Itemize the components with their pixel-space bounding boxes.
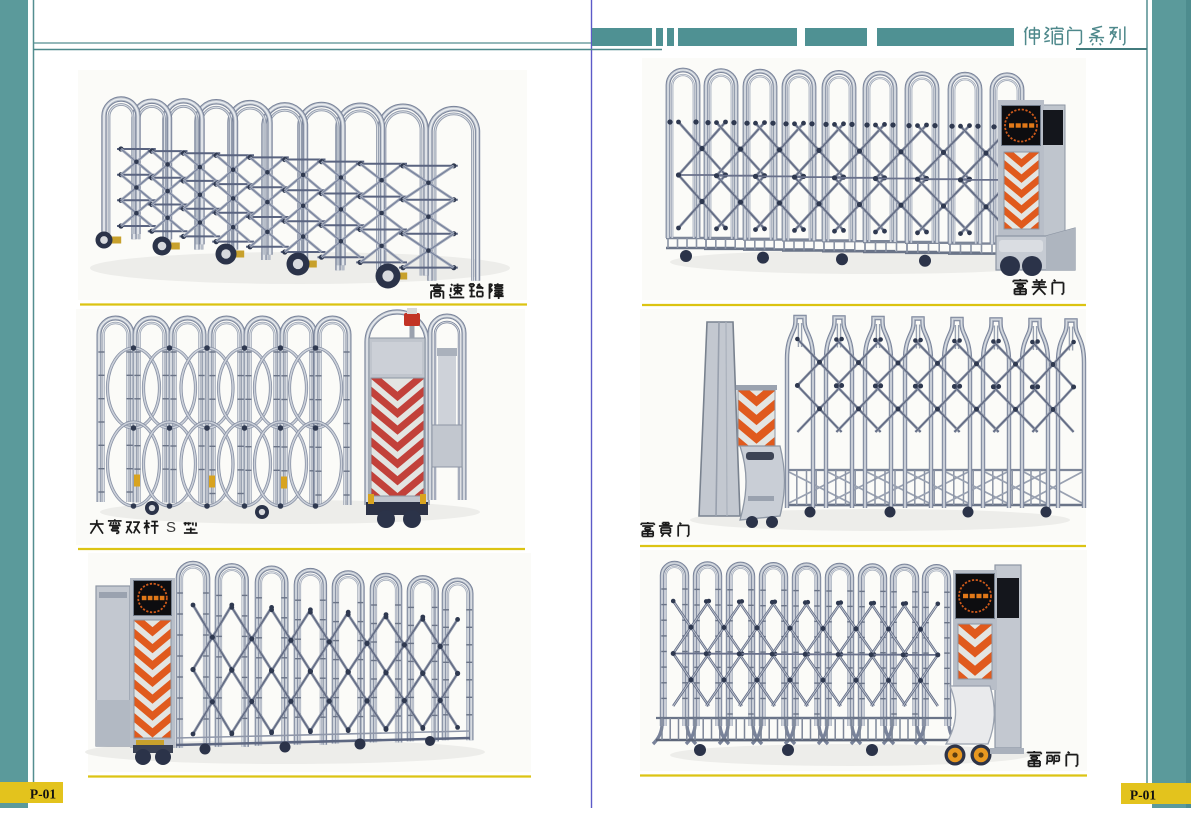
- svg-text:P-01: P-01: [1130, 788, 1156, 803]
- svg-text:S: S: [166, 519, 176, 536]
- svg-text:P-01: P-01: [30, 787, 56, 802]
